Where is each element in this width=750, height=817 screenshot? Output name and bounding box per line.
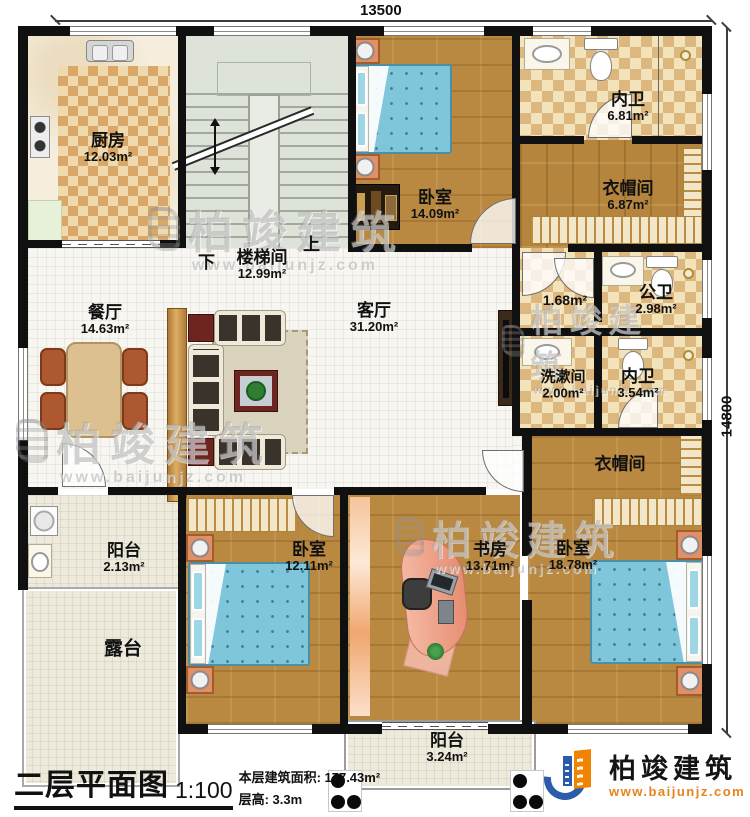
wall: [160, 240, 186, 248]
window: [702, 556, 712, 664]
room-label-bedroom-top: 卧室 14.09m²: [411, 188, 459, 222]
toilet-icon: [646, 256, 678, 268]
shower-icon: [683, 268, 694, 279]
computer-tower-icon: [438, 600, 454, 624]
coffee-table-icon: [234, 370, 278, 412]
chair-icon: [40, 348, 66, 386]
room-label-storage: 1.68m²: [543, 293, 587, 309]
title-block: 二层平面图 1:100 本层建筑面积: 177.43m² 层高: 3.3m: [14, 760, 380, 810]
wall: [632, 136, 702, 144]
plan-scale: 1:100: [175, 777, 233, 804]
wall: [178, 36, 186, 248]
kitchen-sink-icon: [86, 40, 134, 62]
wall: [18, 26, 28, 590]
wall: [334, 487, 486, 495]
stair-arrow-down-icon: [210, 167, 220, 180]
bed-icon: [188, 562, 310, 666]
partition-screen: [167, 308, 187, 502]
room-label-bedroom-left: 卧室 12.11m²: [285, 540, 333, 574]
wall: [348, 36, 356, 252]
wardrobe-rack: [592, 498, 702, 526]
dimension-line-right: [726, 28, 728, 734]
dresser-icon: [350, 184, 400, 230]
company-website: www.baijunjz.com: [609, 784, 745, 799]
sofa-icon: [214, 434, 286, 470]
plan-info: 本层建筑面积: 177.43m² 层高: 3.3m: [239, 767, 381, 810]
terrace-floor: [22, 587, 180, 787]
room-label-balcony-left: 阳台 2.13m²: [103, 541, 144, 575]
toilet-icon: [584, 38, 618, 50]
nightstand-icon: [186, 666, 214, 694]
nightstand-icon: [186, 534, 214, 562]
dimension-top-label: 13500: [360, 2, 402, 19]
wall: [340, 495, 348, 724]
stair-landing-edge: [217, 62, 311, 96]
company-logo: 柏竣建筑 www.baijunjz.com: [546, 750, 745, 804]
window: [702, 358, 712, 420]
wall: [520, 428, 702, 436]
stair-arrow-up-icon: [210, 113, 220, 126]
dimension-right-label: 14800: [719, 392, 736, 442]
room-label-closet-top: 衣帽间 6.87m²: [603, 179, 654, 213]
wall: [594, 252, 602, 322]
room-label-bath-mid: 内卫 3.54m²: [617, 367, 658, 401]
wall: [520, 136, 584, 144]
study-runner: [350, 497, 370, 716]
window: [214, 26, 310, 36]
washing-machine-icon: [30, 506, 58, 536]
chair-icon: [122, 392, 148, 430]
toilet-icon: [618, 338, 648, 350]
plan-title: 二层平面图: [14, 760, 169, 804]
wardrobe-rack: [680, 432, 702, 496]
nightstand-icon: [676, 530, 704, 560]
window: [208, 724, 312, 734]
company-logo-icon: [546, 750, 602, 804]
shower-icon: [680, 50, 691, 61]
wall: [568, 244, 702, 252]
wardrobe-rack: [186, 498, 298, 532]
window: [702, 260, 712, 318]
sofa-icon: [214, 310, 286, 346]
stair-down-label: 下: [198, 248, 215, 273]
wall: [28, 487, 58, 495]
wall: [186, 487, 292, 495]
window: [18, 348, 28, 440]
wall: [108, 487, 180, 495]
stair-arrow: [214, 120, 216, 168]
sink-icon: [610, 262, 636, 278]
room-label-bedroom-right: 卧室 18.78m²: [549, 539, 597, 573]
window: [384, 26, 484, 36]
window: [70, 26, 176, 36]
room-label-dining: 餐厅 14.63m²: [81, 303, 129, 337]
wall: [594, 336, 602, 436]
shower-icon: [683, 350, 694, 361]
bed-icon: [352, 64, 452, 154]
window: [702, 94, 712, 170]
stair-up-label: 上: [303, 230, 320, 255]
dimension-line-top: [55, 20, 712, 22]
room-label-balcony-bottom: 阳台 3.24m²: [426, 731, 467, 765]
room-label-kitchen: 厨房 12.03m²: [84, 131, 132, 165]
end-table-icon: [188, 438, 214, 466]
room-label-bath-top: 内卫 6.81m²: [607, 90, 648, 124]
wall: [28, 240, 62, 248]
floor-plan: 柏竣建筑 www.baijunjz.com 柏竣建筑 www.baijunjz.…: [0, 0, 750, 817]
plant-icon: [427, 643, 444, 660]
sink-icon: [31, 552, 49, 572]
room-label-stairwell: 楼梯间 12.99m²: [237, 248, 288, 282]
wall: [522, 600, 532, 724]
plan-title-underline: 二层平面图 1:100: [14, 760, 233, 810]
room-label-public-bath: 公卫 2.98m²: [635, 283, 676, 317]
company-logo-text: 柏竣建筑 www.baijunjz.com: [609, 755, 745, 798]
sofa-icon: [188, 344, 224, 436]
room-label-closet-bottom: 衣帽间: [595, 454, 646, 473]
room-label-washroom: 洗漱间 2.00m²: [540, 369, 585, 400]
window: [568, 724, 688, 734]
dining-table-icon: [66, 342, 122, 438]
room-label-living: 客厅 31.20m²: [350, 301, 398, 335]
end-table-icon: [188, 314, 214, 342]
wall: [512, 252, 520, 436]
wall: [348, 244, 472, 252]
floor-height-label: 层高: 3.3m: [239, 789, 381, 810]
bed-icon: [590, 560, 704, 664]
sink-icon: [532, 45, 562, 63]
room-label-terrace: 露台: [104, 638, 142, 659]
company-name: 柏竣建筑: [609, 755, 745, 783]
toilet-icon: [590, 51, 612, 81]
wall: [178, 487, 186, 724]
wardrobe-rack: [683, 148, 702, 220]
wall: [520, 328, 702, 336]
building-area-label: 本层建筑面积: 177.43m²: [239, 767, 381, 788]
shower-divider: [658, 36, 659, 136]
sliding-door: [62, 240, 160, 248]
window: [533, 26, 591, 36]
chair-icon: [122, 348, 148, 386]
wardrobe-rack: [530, 216, 702, 244]
room-label-study: 书房 13.71m²: [466, 540, 514, 574]
nightstand-icon: [676, 666, 704, 696]
sliding-door: [382, 722, 488, 730]
sink-icon: [534, 344, 560, 360]
chair-icon: [40, 392, 66, 430]
column-symbol: [510, 770, 544, 812]
stove-icon: [30, 116, 50, 158]
